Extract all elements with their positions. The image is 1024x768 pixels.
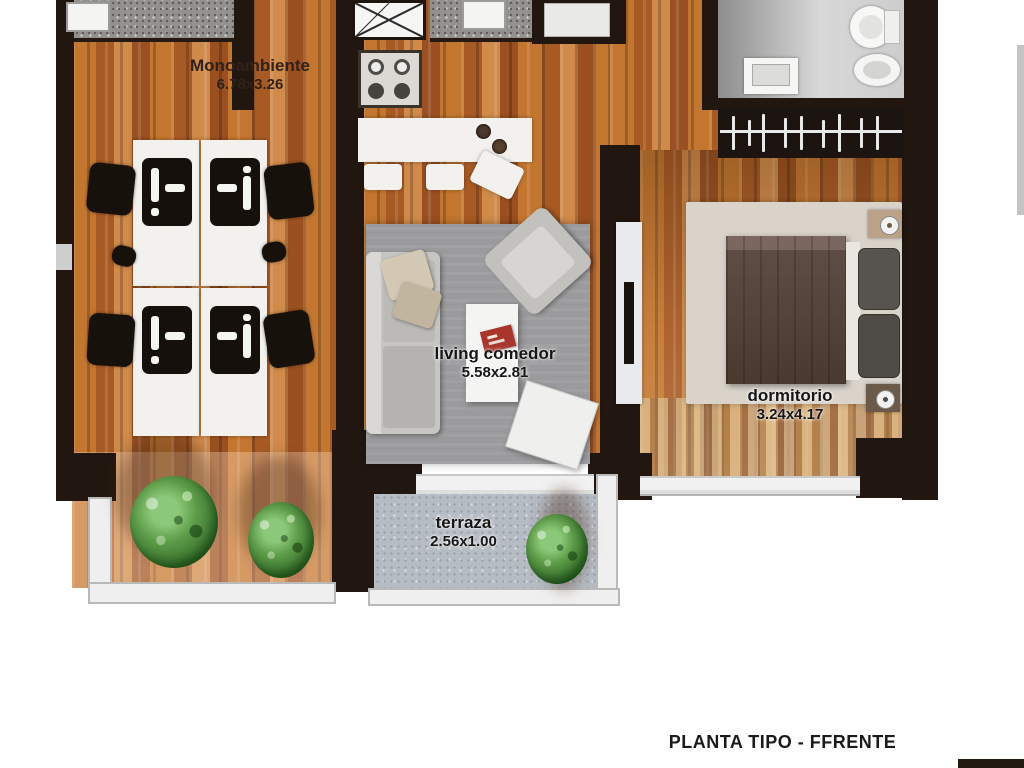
hanger-icon (838, 114, 841, 152)
left-wall (56, 0, 74, 462)
monitor-dot (243, 314, 251, 321)
keyboard-bar (165, 332, 185, 340)
monitor-dot (151, 356, 159, 364)
chair (262, 309, 316, 370)
lamp-center (883, 397, 888, 402)
stool (364, 164, 402, 190)
toilet-tank (884, 10, 900, 44)
hanger-icon (748, 120, 751, 146)
monitor-dot (243, 166, 251, 173)
monitor-bar (243, 176, 251, 210)
folding-table (352, 0, 426, 40)
armchair-cushion (500, 224, 576, 300)
kitchen-island (358, 118, 532, 162)
burner-icon (368, 83, 384, 99)
hanger-icon (876, 116, 879, 150)
stool (426, 164, 464, 190)
bidet-icon (854, 54, 900, 86)
room-dimensions: 3.24x4.17 (715, 406, 865, 425)
monitor-bar (151, 168, 159, 202)
room-name: dormitorio (715, 385, 865, 406)
closet (718, 108, 904, 158)
plan-title: PLANTA TIPO - FFRENTE (655, 732, 910, 753)
book-detail (487, 334, 497, 339)
refrigerator (544, 3, 610, 37)
left-bottom-corner-wall (56, 453, 116, 501)
sliding-door (616, 222, 642, 404)
room-dimensions: 6.78x3.26 (150, 76, 350, 95)
room-label-dormitorio: dormitorio 3.24x4.17 (715, 385, 865, 425)
hanger-icon (860, 118, 863, 148)
workstation-icon (210, 306, 260, 374)
terrace-front-railing (368, 588, 620, 606)
terrace-right-railing (596, 474, 618, 600)
room-label-monoambiente: Monoambiente 6.78x3.26 (150, 55, 350, 95)
workstation-icon (142, 306, 192, 374)
bedside-lamp-icon (876, 390, 895, 409)
right-wall (902, 0, 938, 500)
hanger-icon (762, 114, 765, 152)
room-label-terraza: terraza 2.56x1.00 (396, 512, 531, 552)
monitor-bar (151, 316, 159, 350)
duvet-folds (726, 236, 846, 384)
room-label-living-comedor: living comedor 5.58x2.81 (410, 343, 580, 383)
room-dimensions: 5.58x2.81 (410, 364, 580, 383)
monitor-dot (151, 208, 159, 216)
bedroom-window-sill (640, 476, 860, 496)
lamp-center (887, 223, 892, 228)
balcony-plant (130, 476, 218, 568)
bidet-bowl (863, 61, 891, 79)
x-pattern-icon (355, 3, 423, 37)
chair (86, 162, 137, 217)
chair (86, 312, 136, 367)
burner-icon (368, 59, 384, 75)
hanger-icon (822, 120, 825, 148)
pillow (858, 314, 900, 378)
monitor-bar (243, 324, 251, 358)
toilet-bowl (859, 15, 883, 39)
room-name: living comedor (410, 343, 580, 364)
bedroom-bottom-right-wall (856, 438, 938, 498)
floor-plan: Monoambiente 6.78x3.26 living comedor 5.… (0, 0, 1024, 768)
room-dimensions: 2.56x1.00 (396, 533, 531, 552)
chair (263, 161, 315, 220)
keyboard-bar (217, 184, 237, 192)
bed (726, 236, 846, 384)
bathroom-vanity (744, 58, 798, 94)
room-name: terraza (396, 512, 531, 533)
pillow (858, 248, 900, 310)
left-wall-window (56, 244, 72, 270)
balcony-plant (248, 502, 314, 578)
bedside-lamp-icon (880, 216, 899, 235)
right-edge-artifact (1017, 45, 1024, 215)
cooktop (358, 50, 422, 108)
bottom-right-edge-artifact (958, 759, 1024, 768)
workstation-icon (210, 158, 260, 226)
burner-icon (394, 59, 410, 75)
keyboard-bar (217, 332, 237, 340)
terrace-plant (526, 514, 588, 584)
burner-icon (394, 83, 410, 99)
keyboard-bar (165, 184, 185, 192)
room-name: Monoambiente (150, 55, 350, 76)
vanity-sink-icon (752, 64, 790, 86)
hanger-icon (800, 116, 803, 150)
hanger-icon (732, 116, 735, 150)
kitchen-sink (462, 0, 506, 30)
bowl-icon (492, 139, 507, 154)
balcony-front-railing (88, 582, 336, 604)
sofa-backrest (366, 252, 381, 434)
door-handle (624, 282, 634, 364)
bowl-icon (476, 124, 491, 139)
kitchenette-sink (66, 2, 110, 32)
hanger-icon (784, 118, 787, 148)
workstation-icon (142, 158, 192, 226)
